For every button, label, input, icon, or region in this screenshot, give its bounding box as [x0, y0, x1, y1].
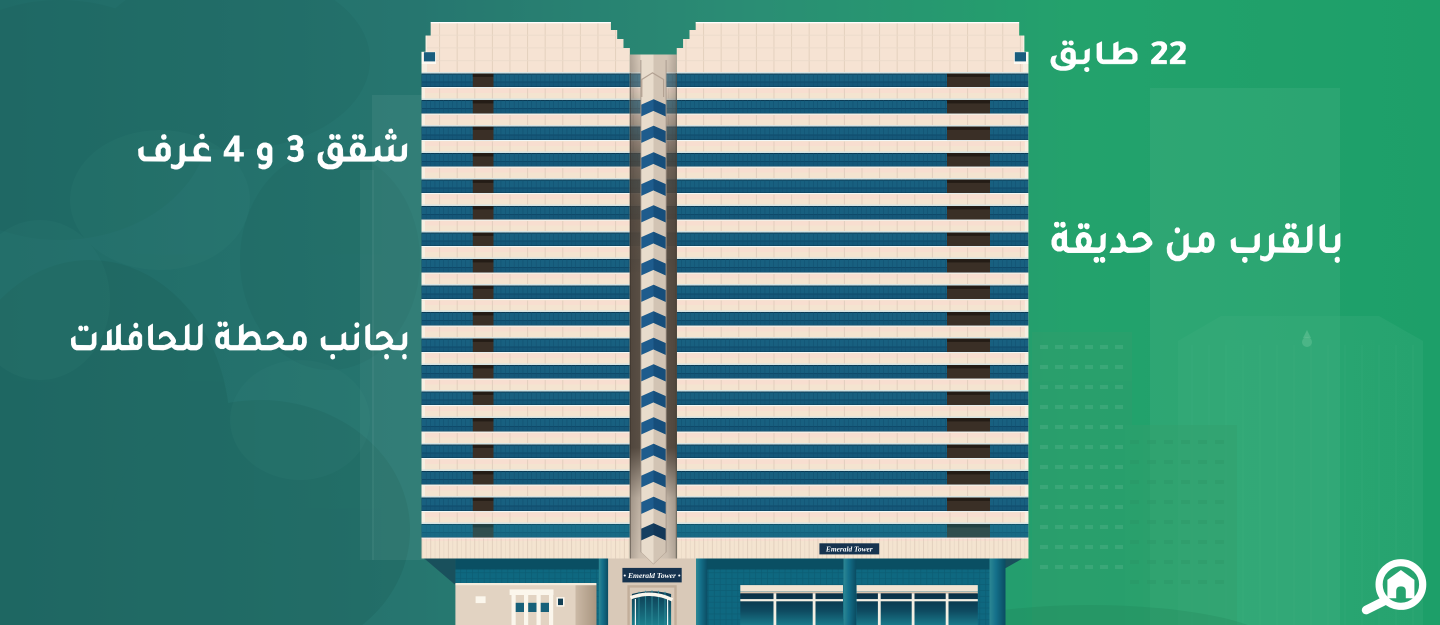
svg-text:Emerald Tower: Emerald Tower	[825, 545, 873, 554]
svg-text:• Emerald Tower •: • Emerald Tower •	[623, 571, 680, 580]
